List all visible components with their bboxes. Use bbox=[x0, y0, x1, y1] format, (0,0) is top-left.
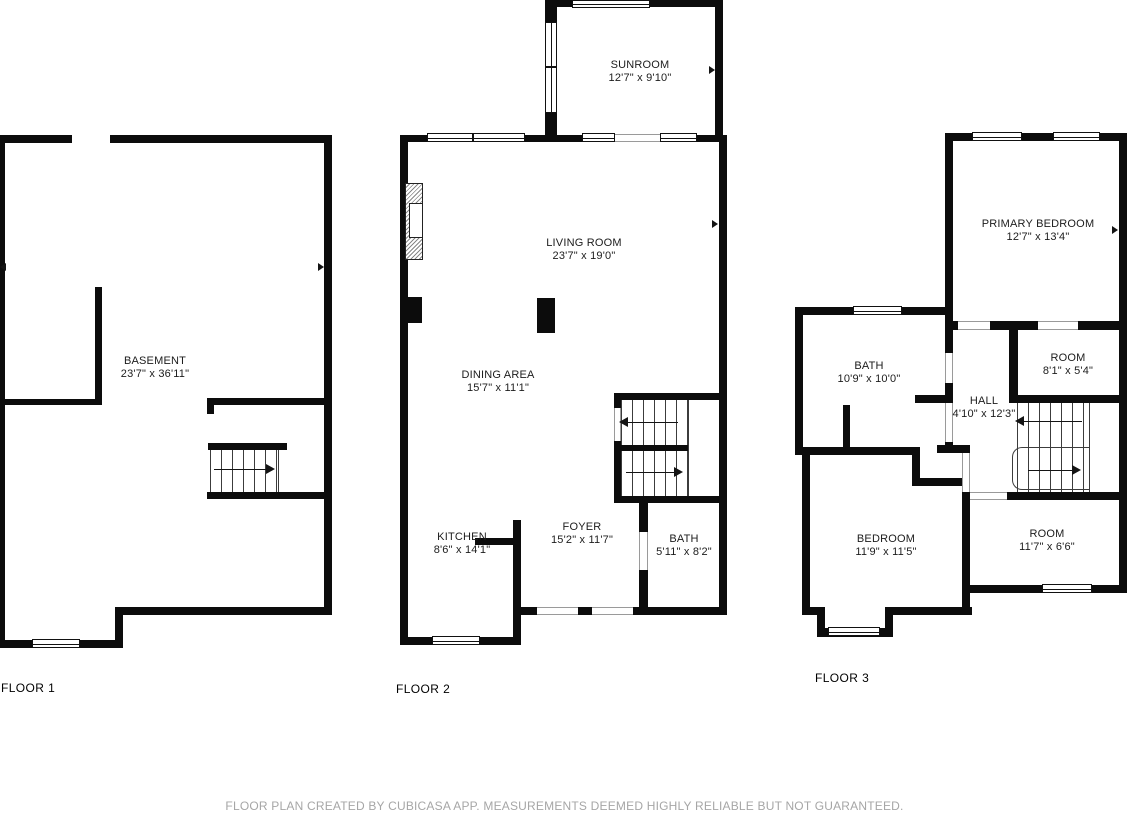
floor3-closet-step-horizontal-wall bbox=[912, 478, 963, 486]
floor2-label: FLOOR 2 bbox=[396, 682, 450, 696]
floor3-hall-room-opening bbox=[970, 492, 1007, 500]
floor1-left-wall-tick-icon bbox=[0, 263, 6, 271]
floor2-top-window-divider bbox=[472, 133, 474, 142]
floor3-bedroom-hall-door-opening bbox=[962, 453, 970, 492]
room-name: KITCHEN bbox=[392, 531, 532, 544]
floor1-stair-bottom-wall bbox=[207, 492, 332, 499]
room-label-primary-bedroom: PRIMARY BEDROOM 12'7" x 13'4" bbox=[968, 218, 1108, 244]
room-name: LIVING ROOM bbox=[514, 237, 654, 250]
room-dims: 8'1" x 5'4" bbox=[998, 365, 1129, 378]
room-name: BEDROOM bbox=[816, 533, 956, 546]
fireplace-firebox bbox=[409, 203, 423, 238]
floor1-partition-vertical-wall bbox=[95, 287, 102, 405]
room-label-sunroom: SUNROOM 12'7" x 9'10" bbox=[570, 59, 710, 85]
floor2-entry-door-right bbox=[592, 607, 633, 615]
room-dims: 5'11" x 8'2" bbox=[614, 546, 754, 559]
floor1-bottom-right-wall bbox=[115, 607, 332, 615]
floor3-right-wall-tick-icon bbox=[1112, 226, 1118, 234]
floor3-stair-down-arrow-shaft bbox=[1028, 470, 1074, 471]
floor2-stair-down-arrow-icon bbox=[674, 467, 683, 477]
floor3-stair-edge-line bbox=[1089, 403, 1090, 492]
floor3-stair-up-arrow-shaft bbox=[1024, 421, 1082, 422]
floor1-stair-top-wall bbox=[207, 398, 332, 405]
sunroom-window-divider bbox=[545, 66, 557, 68]
floor2-stair-down-arrow-shaft bbox=[626, 472, 676, 473]
floor1-right-wall-tick-icon bbox=[318, 263, 324, 271]
room-label-basement: BASEMENT 23'7" x 36'11" bbox=[85, 355, 225, 381]
room-dims: 8'6" x 14'1" bbox=[392, 544, 532, 557]
room-label-dining-area: DINING AREA 15'7" x 11'1" bbox=[428, 369, 568, 395]
room-name: SUNROOM bbox=[570, 59, 710, 72]
floor3-stair-bottom-wall bbox=[1007, 492, 1127, 500]
floor3-stair-down-arrow-icon bbox=[1072, 465, 1081, 475]
floor1-top-wall bbox=[0, 135, 332, 143]
sunroom-right-wall bbox=[715, 0, 723, 135]
room-dims: 11'7" x 6'6" bbox=[977, 541, 1117, 554]
room-name: ROOM bbox=[998, 352, 1129, 365]
floor3-primary-window-left bbox=[972, 132, 1022, 141]
floor3-lower-room-window bbox=[1042, 584, 1092, 593]
room-dims: 10'9" x 10'0" bbox=[799, 373, 939, 386]
room-label-bath-floor2: BATH 5'11" x 8'2" bbox=[614, 533, 754, 559]
floor1-top-wall-opening bbox=[72, 135, 110, 143]
floor1-stair-landing-wall bbox=[208, 443, 287, 450]
floor3-hall-door-opening bbox=[958, 321, 990, 330]
room-name: BASEMENT bbox=[85, 355, 225, 368]
floor3-primary-window-right bbox=[1053, 132, 1100, 141]
floor2-stair-up-arrow-icon bbox=[619, 417, 628, 427]
floor3-bedroom-bottom-wall bbox=[885, 607, 972, 615]
floor2-stair-up-arrow-shaft bbox=[628, 422, 678, 423]
floor3-bath-partition-wall bbox=[843, 405, 850, 450]
room-dims: 12'7" x 13'4" bbox=[968, 231, 1108, 244]
room-name: BATH bbox=[614, 533, 754, 546]
room-dims: 23'7" x 36'11" bbox=[85, 368, 225, 381]
room-label-living-room: LIVING ROOM 23'7" x 19'0" bbox=[514, 237, 654, 263]
floor1-left-wall bbox=[0, 135, 5, 648]
floor1-stair-arrow-icon bbox=[266, 464, 275, 474]
floor3-label: FLOOR 3 bbox=[815, 671, 869, 685]
floor2-entry-door-left bbox=[537, 607, 578, 615]
floor3-bedroom-top-wall bbox=[802, 447, 920, 455]
floor2-wall-protrusion bbox=[400, 297, 422, 323]
floor2-top-window-left bbox=[427, 133, 525, 142]
room-label-kitchen: KITCHEN 8'6" x 14'1" bbox=[392, 531, 532, 557]
room-name: HALL bbox=[914, 395, 1054, 408]
room-label-lower-room: ROOM 11'7" x 6'6" bbox=[977, 528, 1117, 554]
room-label-bedroom: BEDROOM 11'9" x 11'5" bbox=[816, 533, 956, 559]
floor2-top-window-mid bbox=[582, 133, 615, 142]
floor1-partition-horizontal-wall bbox=[0, 399, 102, 405]
room-dims: 23'7" x 19'0" bbox=[514, 250, 654, 263]
room-name: ROOM bbox=[977, 528, 1117, 541]
floor3-bath-window bbox=[853, 306, 902, 315]
floor2-stair-top-wall bbox=[614, 393, 727, 400]
floor1-stair-edge-line bbox=[278, 450, 279, 492]
sunroom-top-window bbox=[572, 0, 650, 8]
room-dims: 15'7" x 11'1" bbox=[428, 382, 568, 395]
floor2-stair-bottom-wall bbox=[614, 496, 727, 503]
floor3-bedroom-left-wall bbox=[802, 447, 810, 615]
room-label-hall: HALL 4'10" x 12'3" bbox=[914, 395, 1054, 421]
floor2-top-window-right bbox=[660, 133, 697, 142]
floor1-label: FLOOR 1 bbox=[1, 681, 55, 695]
floor2-column bbox=[537, 298, 555, 333]
disclaimer-text: FLOOR PLAN CREATED BY CUBICASA APP. MEAS… bbox=[0, 799, 1129, 813]
floor3-primary-left-wall bbox=[945, 133, 953, 330]
room-name: DINING AREA bbox=[428, 369, 568, 382]
room-dims: 4'10" x 12'3" bbox=[914, 408, 1054, 421]
floor1-right-wall bbox=[324, 135, 332, 615]
room-label-bath-floor3: BATH 10'9" x 10'0" bbox=[799, 360, 939, 386]
room-dims: 12'7" x 9'10" bbox=[570, 72, 710, 85]
room-name: PRIMARY BEDROOM bbox=[968, 218, 1108, 231]
floor2-kitchen-window bbox=[432, 636, 480, 645]
floor1-basement-window bbox=[32, 639, 80, 648]
floor3-bath-door-opening bbox=[945, 353, 953, 383]
room-name: BATH bbox=[799, 360, 939, 373]
floor-plan-canvas: BASEMENT 23'7" x 36'11" FLOOR 1 SUNROOM … bbox=[0, 0, 1129, 809]
floor2-sunroom-door-opening bbox=[615, 134, 660, 142]
floor2-right-wall-tick-icon bbox=[712, 220, 718, 228]
floor2-stair-edge-line bbox=[688, 400, 689, 496]
room-label-small-room: ROOM 8'1" x 5'4" bbox=[998, 352, 1129, 378]
room-dims: 11'9" x 11'5" bbox=[816, 546, 956, 559]
floor3-bedroom-window bbox=[828, 627, 880, 636]
floor3-small-room-door-opening bbox=[1038, 321, 1078, 330]
floor1-stair-arrow-shaft bbox=[214, 469, 268, 470]
floor1-stair-left-stub-wall bbox=[207, 398, 214, 414]
